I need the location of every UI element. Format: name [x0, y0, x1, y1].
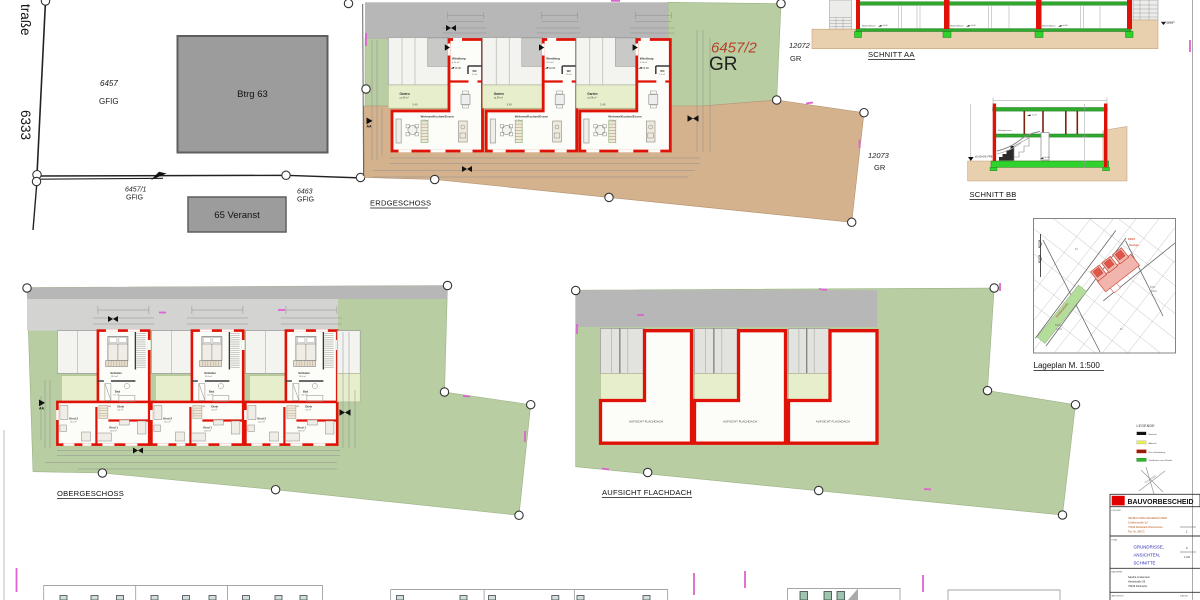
svg-text:1:100: 1:100 [1184, 556, 1191, 559]
svg-text:6.1 m²: 6.1 m² [113, 394, 119, 397]
svg-text:GRUNDRISSE,: GRUNDRISSE, [1134, 545, 1165, 550]
svg-text:GFIG: GFIG [1151, 290, 1157, 293]
svg-text:AA: AA [39, 407, 45, 411]
svg-text:6457/1: 6457/1 [125, 187, 147, 194]
svg-text:Kind 2: Kind 2 [69, 417, 78, 421]
svg-text:±0.00: ±0.00 [549, 66, 556, 70]
svg-text:Bad: Bad [303, 390, 309, 394]
svg-text:WC: WC [660, 69, 664, 73]
svg-text:Abbruch: Abbruch [1149, 442, 1158, 445]
svg-text:traße: traße [18, 4, 33, 36]
svg-text:13.4 m²: 13.4 m² [299, 375, 306, 378]
svg-text:Windfang: Windfang [452, 57, 466, 61]
svg-text:Schlafen: Schlafen [298, 371, 310, 375]
svg-text:12.8 m²: 12.8 m² [298, 430, 305, 433]
svg-text:4.10 m²: 4.10 m² [452, 61, 460, 64]
svg-text:+0.15: +0.15 [1167, 21, 1174, 25]
svg-text:Kind 2: Kind 2 [257, 417, 266, 421]
svg-text:Lageplan M. 1:500: Lageplan M. 1:500 [1034, 361, 1101, 370]
svg-text:GR: GR [874, 163, 886, 172]
svg-text:ca.58 m²: ca.58 m² [400, 97, 410, 100]
svg-text:+5.74: +5.74 [1032, 114, 1038, 116]
svg-text:Wohnen/Essen: Wohnen/Essen [1000, 158, 1014, 160]
svg-text:Wohnen/Essen: Wohnen/Essen [862, 25, 876, 27]
svg-text:Hertzstraße 36: Hertzstraße 36 [1128, 580, 1146, 584]
svg-text:GFIG: GFIG [1056, 328, 1062, 331]
svg-text:Diele: Diele [211, 405, 218, 409]
svg-text:Diele: Diele [117, 405, 124, 409]
svg-text:±0.00: ±0.00 [1045, 157, 1051, 159]
svg-text:DATUM: DATUM [1180, 595, 1188, 598]
svg-text:Wohnen/Kochen/Essen: Wohnen/Kochen/Essen [421, 115, 454, 119]
svg-text:5.49: 5.49 [507, 103, 513, 107]
svg-text:6.1 m²: 6.1 m² [207, 394, 213, 397]
svg-text:Kind 1: Kind 1 [297, 426, 306, 430]
svg-text:LEGENDE: LEGENDE [1137, 424, 1156, 428]
svg-text:AUFSICHT FLACHDACH: AUFSICHT FLACHDACH [816, 420, 850, 424]
svg-text:Wohnen/Kochen/Essen: Wohnen/Kochen/Essen [608, 115, 641, 119]
svg-text:849/2: 849/2 [1128, 237, 1135, 241]
svg-text:GFIG: GFIG [99, 97, 119, 106]
svg-text:AUFSICHT FLACHDACH: AUFSICHT FLACHDACH [629, 420, 663, 424]
svg-text:6463: 6463 [297, 189, 313, 196]
svg-text:Windfang: Windfang [640, 57, 654, 61]
svg-text:±0.00: ±0.00 [971, 25, 977, 27]
svg-text:±0.00: ±0.00 [883, 25, 889, 27]
svg-text:BAUVORBESCHEID: BAUVORBESCHEID [1128, 497, 1194, 506]
svg-text:4.5 m²: 4.5 m² [305, 408, 311, 411]
svg-text:Diele: Diele [305, 405, 312, 409]
svg-text:Garten: Garten [400, 92, 410, 96]
svg-text:4.10 m²: 4.10 m² [640, 61, 648, 64]
svg-text:12073: 12073 [868, 151, 890, 160]
svg-text:Schillerstraße 5d: Schillerstraße 5d [1128, 521, 1148, 525]
svg-text:Stahlbeton neue Wände: Stahlbeton neue Wände [1149, 459, 1173, 462]
svg-text:Wohnen/Kochen/Essen: Wohnen/Kochen/Essen [515, 115, 548, 119]
svg-text:13.4 m²: 13.4 m² [205, 375, 212, 378]
svg-text:Garten: Garten [587, 92, 597, 96]
svg-text:ERDGESCHOSS: ERDGESCHOSS [370, 199, 431, 208]
svg-text:WC: WC [567, 69, 571, 73]
svg-text:12.8 m²: 12.8 m² [204, 430, 211, 433]
svg-text:AUFSICHT FLACHDACH: AUFSICHT FLACHDACH [723, 420, 757, 424]
svg-text:AA: AA [367, 125, 373, 129]
svg-text:8469: 8469 [1055, 324, 1061, 327]
svg-text:GR: GR [790, 54, 802, 63]
svg-text:Neubau: Neubau [1129, 243, 1139, 247]
svg-text:Windfang: Windfang [546, 57, 560, 61]
svg-text:13.4 m²: 13.4 m² [111, 375, 118, 378]
svg-text:±0.00: ±0.00 [642, 66, 649, 70]
svg-text:76646 Waldstadt-Rheinstetten: 76646 Waldstadt-Rheinstetten [1128, 525, 1163, 529]
svg-text:SCHNITT AA: SCHNITT AA [868, 50, 915, 59]
svg-text:4.5 m²: 4.5 m² [117, 408, 123, 411]
svg-text:PROJEKT: PROJEKT [1112, 510, 1123, 512]
svg-text:5.49: 5.49 [413, 103, 419, 107]
svg-text:76229 Karlsruhe: 76229 Karlsruhe [1128, 584, 1148, 588]
svg-text:GFIG: GFIG [126, 195, 143, 202]
svg-text:GFIG: GFIG [297, 197, 314, 204]
svg-text:OBERGESCHOSS: OBERGESCHOSS [57, 489, 124, 498]
svg-text:WC: WC [473, 69, 477, 73]
svg-text:6333: 6333 [18, 110, 33, 140]
svg-text:11.2 m²: 11.2 m² [164, 421, 171, 424]
svg-text:Bad: Bad [209, 390, 215, 394]
svg-text:6.1 m²: 6.1 m² [301, 394, 307, 397]
svg-text:ca.58 m²: ca.58 m² [494, 97, 504, 100]
svg-text:Kind 1: Kind 1 [203, 426, 212, 430]
svg-text:Bestand: Bestand [1149, 433, 1158, 436]
svg-text:5.49: 5.49 [600, 103, 606, 107]
svg-text:ANSICHTEN,: ANSICHTEN, [1134, 553, 1161, 558]
svg-text:Wohnen/Essen: Wohnen/Essen [1042, 25, 1056, 27]
svg-text:BAUHERR: BAUHERR [1112, 571, 1123, 574]
svg-text:Schlafen: Schlafen [204, 371, 216, 375]
svg-text:NEUBAU DREI REIHENHÄUSER: NEUBAU DREI REIHENHÄUSER [1128, 516, 1167, 520]
svg-text:Garten: Garten [494, 92, 504, 96]
svg-text:4.5 m²: 4.5 m² [211, 408, 217, 411]
svg-text:Neu Umfahrdung: Neu Umfahrdung [1149, 451, 1166, 454]
svg-text:Sandra Lindemann: Sandra Lindemann [1128, 575, 1150, 579]
svg-text:±0.00: ±0.00 [1063, 25, 1069, 27]
svg-text:PLAN: PLAN [1112, 539, 1118, 542]
svg-text:±0.00=OK FFB: ±0.00=OK FFB [975, 155, 993, 159]
svg-text:Wohnen/Essen: Wohnen/Essen [950, 25, 964, 27]
svg-text:SCHNITTE: SCHNITTE [1134, 561, 1156, 566]
svg-text:ARCHITEKT: ARCHITEKT [1112, 595, 1125, 598]
svg-text:12.8 m²: 12.8 m² [110, 430, 117, 433]
svg-text:AUFSICHT FLACHDACH: AUFSICHT FLACHDACH [602, 488, 692, 497]
svg-text:4.10 m²: 4.10 m² [546, 61, 554, 64]
svg-text:Bad: Bad [115, 390, 121, 394]
svg-text:1.9 m²: 1.9 m² [566, 73, 572, 76]
svg-text:Wohngeschoss: Wohngeschoss [998, 130, 1012, 132]
svg-text:8471: 8471 [1150, 286, 1156, 289]
svg-text:11.2 m²: 11.2 m² [258, 421, 265, 424]
svg-text:1.9 m²: 1.9 m² [659, 73, 665, 76]
svg-text:ca.58 m²: ca.58 m² [587, 97, 597, 100]
svg-text:Btrg 63: Btrg 63 [237, 89, 268, 100]
svg-text:11.2 m²: 11.2 m² [70, 421, 77, 424]
svg-text:Schlafen: Schlafen [110, 371, 122, 375]
svg-text:1.9 m²: 1.9 m² [472, 73, 478, 76]
svg-text:12072: 12072 [789, 41, 811, 50]
svg-text:GR: GR [709, 54, 738, 75]
svg-text:Kind 2: Kind 2 [163, 417, 172, 421]
svg-text:Pla.-Nr. 84572: Pla.-Nr. 84572 [1128, 530, 1145, 534]
svg-text:SCHNITT BB: SCHNITT BB [970, 190, 1017, 199]
svg-text:±0.00: ±0.00 [455, 66, 462, 70]
svg-text:6457: 6457 [100, 79, 118, 88]
svg-text:65 Veranst: 65 Veranst [214, 210, 260, 221]
svg-text:Kind 1: Kind 1 [109, 426, 118, 430]
